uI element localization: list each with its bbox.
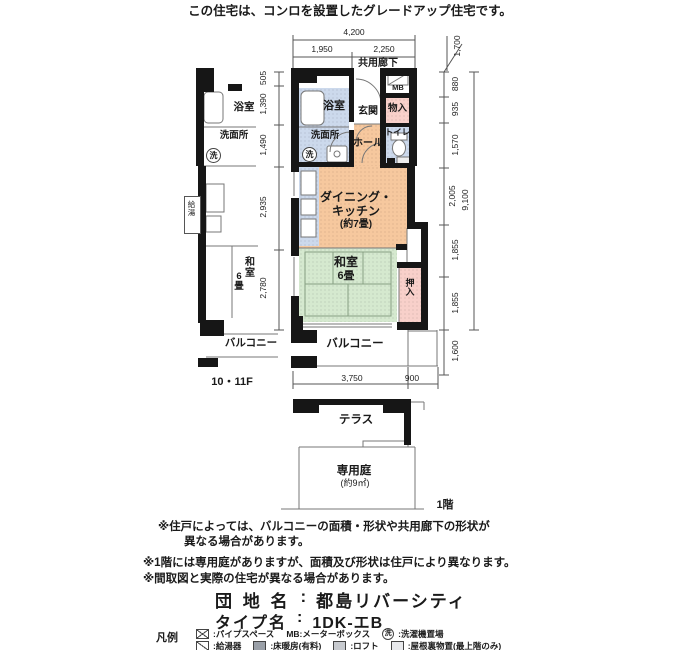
laundry-mark: 洗 bbox=[302, 147, 317, 162]
legend-laundry: :洗濯機置場 bbox=[398, 628, 443, 640]
wall-segment bbox=[228, 84, 242, 91]
entrance-label: 玄関 bbox=[354, 106, 382, 117]
dim-total-width: 4,200 bbox=[324, 27, 384, 37]
closet-label: 押入 bbox=[404, 279, 416, 298]
corridor-label: 共用廊下 bbox=[350, 58, 406, 69]
lp-washroom-label: 洗面所 bbox=[212, 131, 256, 141]
legend-pipe-space: :パイプスペース bbox=[213, 628, 274, 640]
pipe-space-icon bbox=[196, 629, 209, 639]
balcony-label: バルコニー bbox=[320, 338, 390, 351]
hall-label: ホール bbox=[351, 138, 385, 149]
bathroom-label: 浴室 bbox=[310, 100, 358, 112]
dim-balcony-width: 3,750 bbox=[326, 373, 378, 383]
wall-segment bbox=[196, 90, 204, 166]
wall-segment bbox=[396, 244, 407, 250]
lp-laundry-mark: 洗 bbox=[206, 148, 221, 163]
lp-washitsu-label-1: 和室 bbox=[244, 258, 256, 279]
wall-segment bbox=[291, 76, 299, 172]
legend-mb: MB:メーターボックス bbox=[286, 628, 370, 640]
wall-segment bbox=[198, 358, 218, 367]
note-1a: ※住戸によっては、バルコニーの面積・形状や共用廊下の形状が bbox=[158, 518, 490, 534]
wall-segment bbox=[409, 72, 417, 166]
dim-right-3: 2,005 bbox=[447, 174, 457, 218]
lp-bathroom-label: 浴室 bbox=[224, 102, 264, 114]
mb-label: MB bbox=[389, 84, 407, 92]
wall-segment bbox=[198, 166, 206, 323]
note-1b: 異なる場合があります。 bbox=[184, 533, 309, 549]
dim-right-2: 1,570 bbox=[450, 123, 460, 167]
wall-segment bbox=[291, 330, 317, 343]
wall-segment bbox=[291, 356, 317, 368]
pipe-space-mark bbox=[387, 158, 395, 166]
wall-segment bbox=[404, 399, 411, 445]
washitsu-label-1: 和室 bbox=[326, 256, 366, 269]
water-heater-icon bbox=[196, 641, 209, 650]
garden-size-label: (約9㎡) bbox=[336, 479, 374, 489]
lp-floors-label: 10・11F bbox=[206, 376, 258, 388]
dim-left-3: 2,935 bbox=[258, 185, 268, 229]
floor-heating-icon bbox=[253, 641, 266, 650]
lp-washitsu-label-2: 6畳 bbox=[233, 272, 245, 292]
dim-left-2: 1,490 bbox=[258, 123, 268, 167]
wall-segment bbox=[291, 198, 299, 256]
legend-heater: :給湯器 bbox=[213, 640, 241, 650]
dim-width-right: 2,250 bbox=[358, 44, 410, 54]
note-2: ※1階には専用庭がありますが、面積及び形状は住戸により異なります。 bbox=[143, 554, 515, 570]
washroom-label: 洗面所 bbox=[301, 131, 349, 141]
dk-label-1: ダイニング・ bbox=[318, 191, 394, 204]
terrace-label: テラス bbox=[336, 414, 376, 427]
legend-row-1: :パイプスペース MB:メーターボックス 洗 :洗濯機置場 bbox=[196, 628, 443, 640]
dim-balcony-height: 1,600 bbox=[450, 329, 460, 373]
note-3: ※間取図と実際の住宅が異なる場合があります。 bbox=[143, 570, 395, 586]
wall-segment bbox=[291, 316, 303, 330]
dk-label-2: キッチン bbox=[318, 205, 394, 218]
dim-left-4: 2,780 bbox=[258, 266, 268, 310]
toilet-label: トイレ bbox=[384, 128, 411, 137]
legend-floor-heating: :床暖房(有料) bbox=[270, 640, 321, 650]
legend-row-2: :給湯器 :床暖房(有料) :ロフト :屋根裏物置(最上階のみ) bbox=[196, 640, 501, 650]
loft-icon bbox=[333, 641, 346, 650]
wall-segment bbox=[380, 76, 386, 166]
dim-balcony-ext: 900 bbox=[395, 373, 429, 383]
legend-attic: :屋根裏物置(最上階のみ) bbox=[408, 640, 502, 650]
laundry-icon: 洗 bbox=[382, 628, 394, 640]
lp-balcony-label: バルコニー bbox=[222, 338, 280, 350]
legend-loft: :ロフト bbox=[350, 640, 378, 650]
legend-title: 凡例 bbox=[152, 632, 182, 644]
wall-segment bbox=[397, 262, 421, 268]
water-heater-label: 給湯 bbox=[186, 201, 197, 217]
dim-total-height: 9,100 bbox=[460, 178, 470, 222]
washitsu-label-2: 6畳 bbox=[330, 270, 362, 282]
wall-segment bbox=[293, 399, 319, 413]
dim-width-left: 1,950 bbox=[296, 44, 348, 54]
dim-right-5: 1,855 bbox=[450, 281, 460, 325]
dim-right-4: 1,855 bbox=[450, 228, 460, 272]
wall-segment bbox=[296, 162, 354, 167]
wall-segment bbox=[386, 93, 409, 98]
dk-label-3: (約7畳) bbox=[322, 219, 390, 230]
floorplan-page: この住宅は、コンロを設置したグレードアップ住宅です。 bbox=[0, 0, 700, 650]
wall-segment bbox=[200, 320, 224, 336]
attic-storage-icon bbox=[391, 641, 404, 650]
ground-floor-label: 1階 bbox=[432, 499, 458, 511]
wall-segment bbox=[421, 222, 428, 330]
wall-segment bbox=[407, 166, 415, 228]
wall-segment bbox=[397, 322, 428, 330]
garden-label: 専用庭 bbox=[332, 465, 376, 478]
storage-label: 物入 bbox=[386, 104, 409, 114]
wall-segment bbox=[196, 68, 214, 92]
